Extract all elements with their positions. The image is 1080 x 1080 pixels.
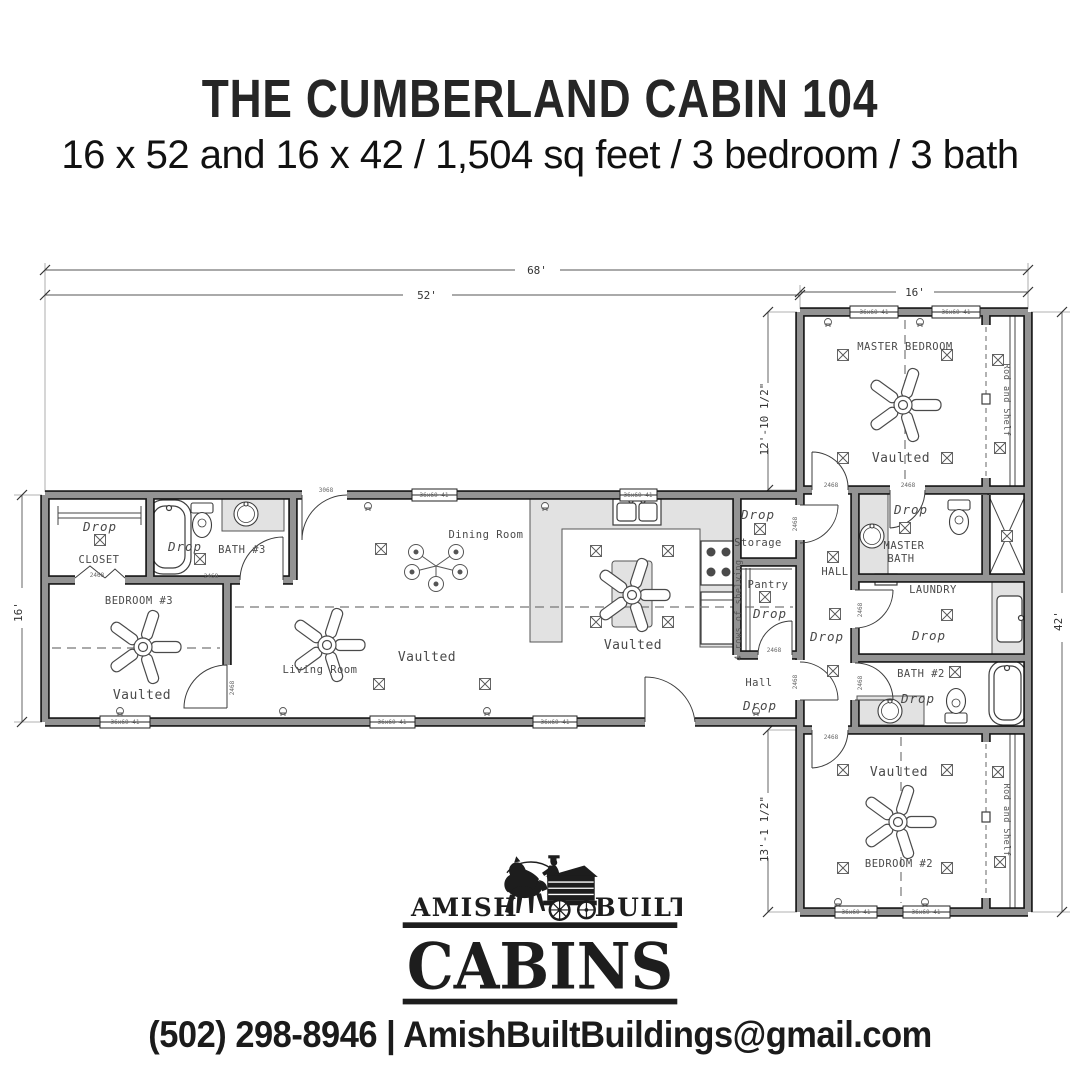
light-icon xyxy=(828,666,839,677)
dim-main: 52' xyxy=(417,289,437,302)
note-shelving: 4 rows of shelving xyxy=(734,559,744,660)
light-icon xyxy=(376,544,387,555)
light-icon xyxy=(195,554,206,565)
logo-rule-top xyxy=(403,922,678,928)
ceiling-fan-icon xyxy=(109,609,181,685)
logo-graphic: AMISH BUILT xyxy=(398,848,682,1008)
note-rod-shelf: Rod and Shelf xyxy=(1001,363,1011,436)
light-icon xyxy=(900,523,911,534)
note-drop: Drop xyxy=(740,507,775,522)
light-icon xyxy=(838,765,849,776)
light-icon xyxy=(995,857,1006,868)
toilet-icon xyxy=(948,500,970,535)
svg-text:2468: 2468 xyxy=(792,674,799,689)
light-icon xyxy=(838,453,849,464)
amish-built-cabins-logo: AMISH BUILT xyxy=(398,848,682,1008)
outlet-icon xyxy=(117,708,124,717)
sink-icon xyxy=(878,699,902,723)
room-label-living: Living Room xyxy=(282,664,357,676)
room-label-bedroom3: BEDROOM #3 xyxy=(105,595,173,607)
light-icon xyxy=(591,546,602,557)
svg-text:36x60-41: 36x60-41 xyxy=(842,909,871,916)
room-label-pantry: Pantry xyxy=(748,579,789,591)
room-label-master-bath2: BATH xyxy=(887,553,914,565)
toilet-icon xyxy=(191,503,213,538)
dim-wing: 16' xyxy=(905,286,925,299)
light-icon xyxy=(838,350,849,361)
note-drop: Drop xyxy=(900,691,935,706)
closet-bifold-doors xyxy=(982,327,990,896)
light-icon xyxy=(838,863,849,874)
light-icon xyxy=(950,667,961,678)
svg-text:2468: 2468 xyxy=(792,516,799,531)
outlet-icon xyxy=(484,708,491,717)
note-vaulted: Vaulted xyxy=(872,451,930,466)
note-drop: Drop xyxy=(809,629,844,644)
outlet-icon xyxy=(280,708,287,717)
light-icon xyxy=(830,609,841,620)
svg-text:3068: 3068 xyxy=(319,487,334,494)
light-icon xyxy=(480,679,491,690)
room-label-master-bath: MASTER xyxy=(884,540,925,552)
room-label-hall-lower: Hall xyxy=(745,677,772,689)
ceiling-fans xyxy=(109,367,941,860)
light-icon xyxy=(95,535,106,546)
logo-amish-text: AMISH xyxy=(410,893,518,922)
light-icon xyxy=(942,453,953,464)
svg-text:36x60-41: 36x60-41 xyxy=(378,719,407,726)
ceiling-fan-icon xyxy=(864,784,936,860)
svg-text:36x60-41: 36x60-41 xyxy=(942,309,971,316)
room-label-closet: CLOSET xyxy=(79,554,120,566)
room-label-bath3: BATH #3 xyxy=(218,544,266,556)
logo-rule-bottom xyxy=(403,999,678,1005)
light-icon xyxy=(828,552,839,563)
note-drop: Drop xyxy=(167,539,202,554)
dim-upper: 12'-10 1/2" xyxy=(758,383,771,456)
wall-outlets xyxy=(117,319,929,908)
note-vaulted: Vaulted xyxy=(113,688,171,703)
horse-and-buggy-icon xyxy=(504,855,597,920)
bathtub-icon xyxy=(989,661,1026,725)
note-vaulted: Vaulted xyxy=(870,765,928,780)
sink-icon xyxy=(234,502,258,526)
room-label-hall-upper: HALL xyxy=(821,566,848,578)
chandelier-icon xyxy=(405,545,468,592)
light-icon xyxy=(663,617,674,628)
note-vaulted: Vaulted xyxy=(604,638,662,653)
room-label-bath2: BATH #2 xyxy=(897,668,945,680)
svg-text:2468: 2468 xyxy=(901,482,916,489)
svg-text:2468: 2468 xyxy=(857,675,864,690)
door-tags: 3068 2468 2468 2468 2468 2468 2468 2468 … xyxy=(90,482,916,741)
note-drop: Drop xyxy=(893,502,928,517)
svg-text:36x60-41: 36x60-41 xyxy=(860,309,889,316)
toilet-icon xyxy=(945,689,967,724)
dim-lower: 13'-1 1/2" xyxy=(758,796,771,862)
svg-text:2468: 2468 xyxy=(824,482,839,489)
svg-text:2468: 2468 xyxy=(90,572,105,579)
kitchen-sink-icon xyxy=(613,499,661,525)
svg-text:36x60-41: 36x60-41 xyxy=(111,719,140,726)
note-drop: Drop xyxy=(742,698,777,713)
svg-text:36x60-41: 36x60-41 xyxy=(541,719,570,726)
svg-text:36x60-41: 36x60-41 xyxy=(624,492,653,499)
note-drop: Drop xyxy=(911,628,946,643)
dim-depth: 16' xyxy=(12,602,25,622)
svg-text:36x60-41: 36x60-41 xyxy=(912,909,941,916)
light-icon xyxy=(995,443,1006,454)
contact-line: (502) 298-8946 | AmishBuiltBuildings@gma… xyxy=(38,1014,1042,1056)
stove-icon xyxy=(701,541,735,585)
light-icon xyxy=(755,524,766,535)
svg-text:36x60-41: 36x60-41 xyxy=(420,492,449,499)
logo-cabins-text: CABINS xyxy=(407,929,673,1004)
outlet-icon xyxy=(365,503,372,512)
note-drop: Drop xyxy=(82,519,117,534)
logo-built-text: BUILT xyxy=(595,893,682,922)
note-vaulted: Vaulted xyxy=(398,650,456,665)
room-label-laundry: LAUNDRY xyxy=(909,584,957,596)
dim-overall: 68' xyxy=(527,264,547,277)
light-icon xyxy=(942,765,953,776)
light-icon xyxy=(663,546,674,557)
light-icon xyxy=(993,767,1004,778)
light-icon xyxy=(942,863,953,874)
svg-text:2468: 2468 xyxy=(767,647,782,654)
svg-text:2468: 2468 xyxy=(229,680,236,695)
svg-text:2468: 2468 xyxy=(204,573,219,580)
utility-sink-icon xyxy=(997,596,1024,642)
svg-text:2468: 2468 xyxy=(857,602,864,617)
email-address: AmishBuiltBuildings@gmail.com xyxy=(403,1014,932,1055)
contact-divider: | xyxy=(386,1014,395,1055)
note-drop: Drop xyxy=(752,606,787,621)
light-icon xyxy=(942,610,953,621)
svg-text:2468: 2468 xyxy=(824,734,839,741)
phone-number: (502) 298-8946 xyxy=(148,1014,377,1055)
shower-icon xyxy=(988,494,1026,578)
light-icon xyxy=(374,679,385,690)
fridge-icon xyxy=(701,592,735,644)
room-label-bedroom2: BEDROOM #2 xyxy=(865,858,933,870)
room-label-dining: Dining Room xyxy=(448,529,523,541)
light-icon xyxy=(760,592,771,603)
room-label-master-bedroom: MASTER BEDROOM xyxy=(857,341,953,353)
note-rod-shelf: Rod and Shelf xyxy=(1001,783,1011,856)
sink-icon xyxy=(860,524,884,548)
light-icon xyxy=(591,617,602,628)
room-label-storage: Storage xyxy=(734,537,782,549)
outlet-icon xyxy=(917,319,924,328)
dim-length: 42' xyxy=(1052,611,1065,631)
outlet-icon xyxy=(825,319,832,328)
